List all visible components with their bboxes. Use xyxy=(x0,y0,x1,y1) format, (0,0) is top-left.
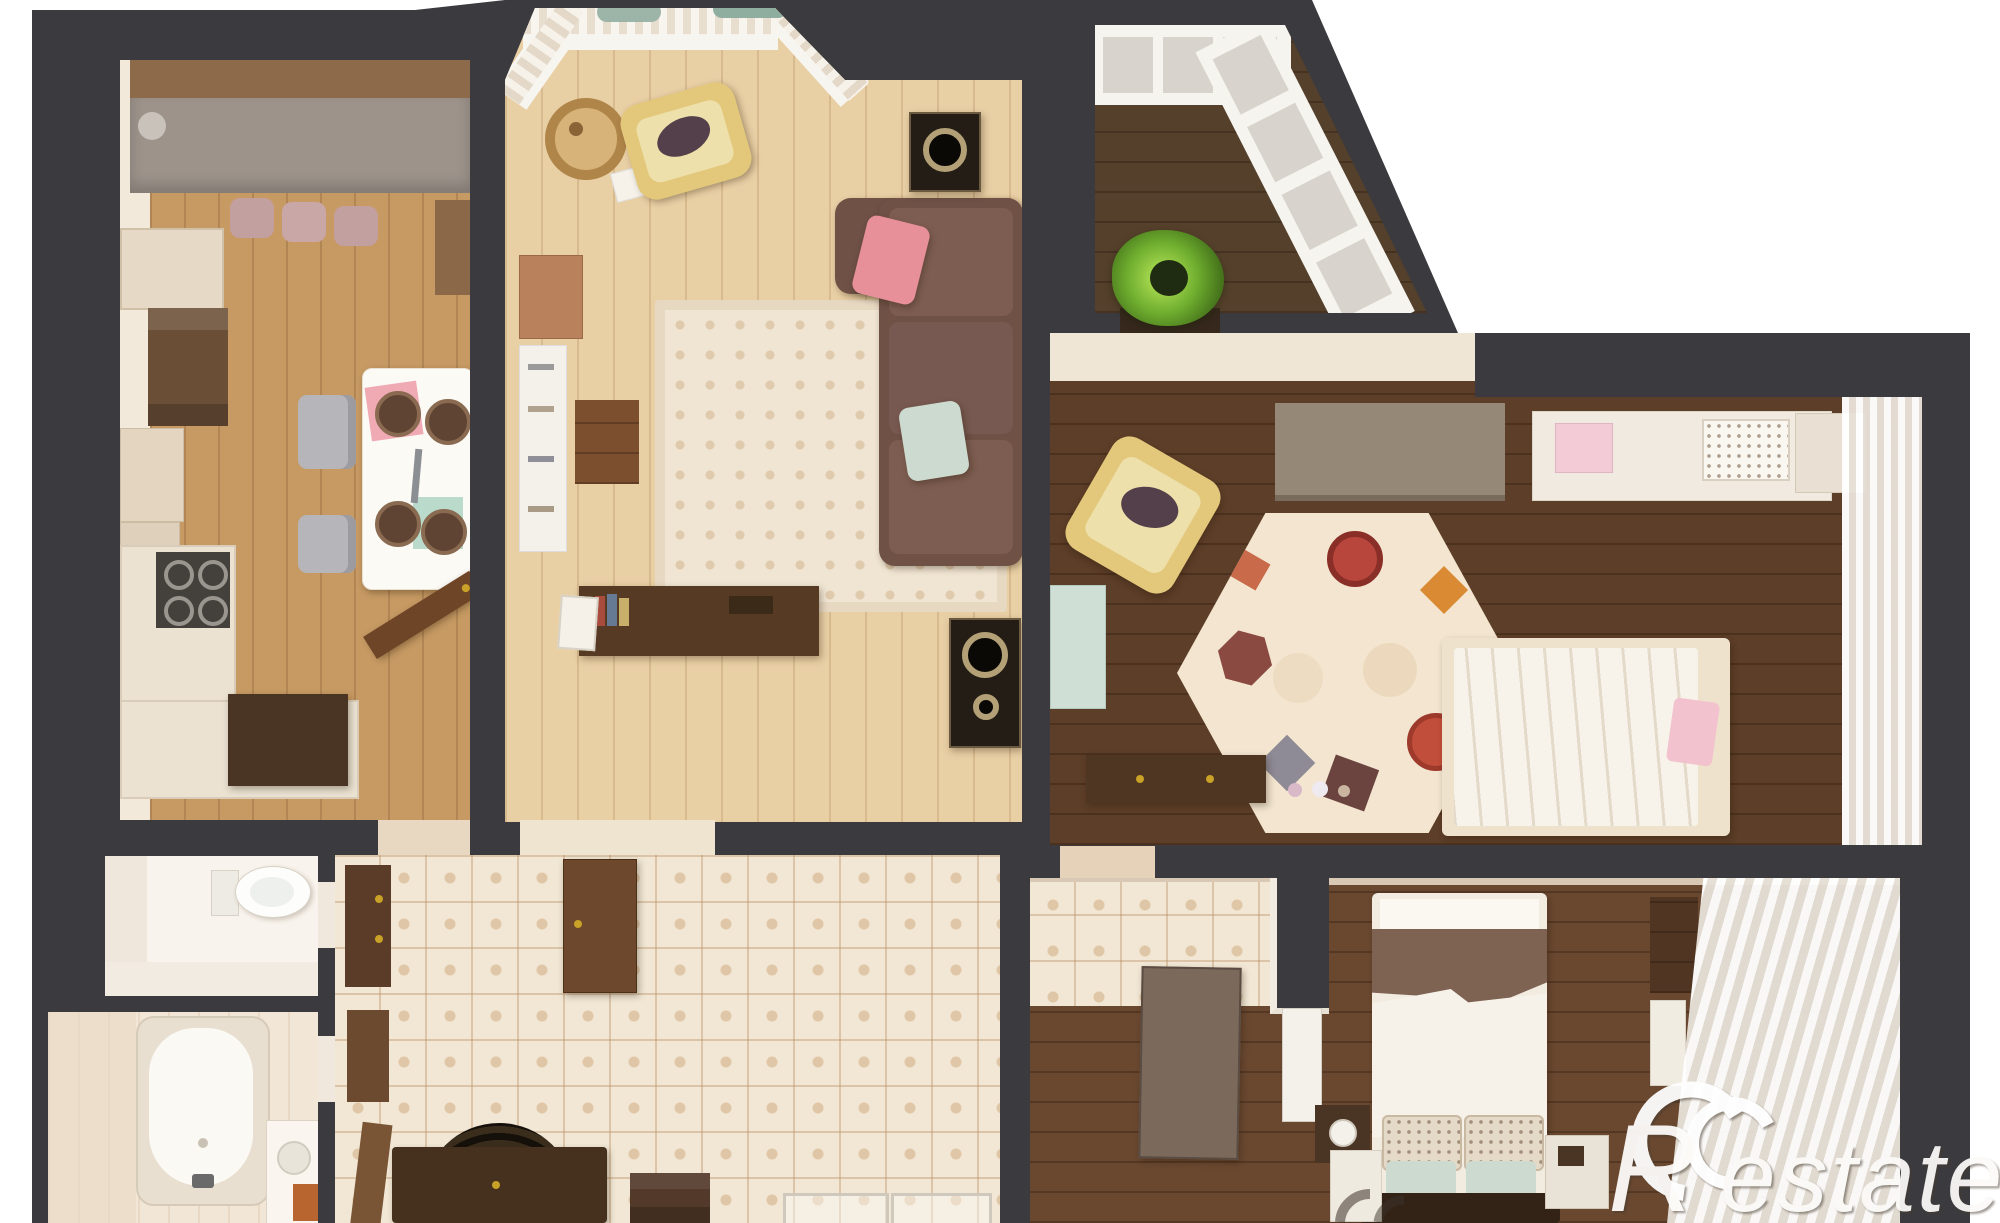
hall-bench xyxy=(392,1147,607,1223)
doorway-kitchen xyxy=(378,820,470,855)
doorway-living xyxy=(520,820,715,855)
desk-taupe xyxy=(1275,403,1505,501)
sofa-pillow-mint xyxy=(898,400,971,483)
bar-plate xyxy=(138,112,166,140)
watermark: R estate xyxy=(1580,1075,2000,1223)
console-table xyxy=(891,1193,992,1223)
laundry-basket xyxy=(293,1184,318,1221)
bathtub-basin xyxy=(149,1028,253,1186)
rug-motif xyxy=(1420,566,1468,614)
bar-stool-cushion xyxy=(334,206,378,246)
room-bathroom xyxy=(48,1012,318,1223)
floor-plan-stage: R estate xyxy=(0,0,2000,1223)
curtain-panel xyxy=(1842,381,1922,845)
tv-cabinet xyxy=(519,255,583,339)
bath-wall-shade xyxy=(48,1012,136,1223)
fridge xyxy=(120,228,224,310)
balcony-plant xyxy=(1108,230,1232,348)
dinner-plate xyxy=(421,509,467,555)
bed-single xyxy=(1442,638,1730,836)
bed-double xyxy=(1372,893,1547,1223)
speaker xyxy=(909,112,981,192)
kitchen-cabinet xyxy=(120,428,184,522)
cosmetics xyxy=(1288,779,1368,801)
bed-top-pillowband xyxy=(1380,899,1539,929)
wc-wall-shade xyxy=(105,962,318,996)
speaker xyxy=(949,618,1021,748)
bathtub xyxy=(136,1016,270,1206)
chest xyxy=(1650,897,1698,993)
watermark-logo-letter: R xyxy=(1608,1100,1698,1223)
wall-art xyxy=(557,595,599,652)
storage-crate xyxy=(1702,419,1790,481)
dining-chair xyxy=(298,395,356,469)
sideboard xyxy=(579,586,819,656)
wall-stub xyxy=(1270,878,1329,1014)
door-leaning xyxy=(1138,966,1241,1160)
table-utensils xyxy=(411,449,423,503)
bench-seat-mint xyxy=(1050,585,1106,709)
storage-box-white xyxy=(1650,1000,1686,1086)
kitchen-cabinet-tall xyxy=(148,308,228,426)
hall-wall-shelf xyxy=(345,865,391,987)
rug-motif xyxy=(1327,531,1383,587)
stove xyxy=(156,552,230,628)
window-sill xyxy=(130,60,470,98)
plant-core xyxy=(1150,260,1188,296)
room-hallway xyxy=(335,855,1000,1223)
side-table-wicker xyxy=(545,98,627,180)
bath-faucet xyxy=(192,1174,214,1188)
dinner-plate xyxy=(375,501,421,547)
bedroom1-top-wall xyxy=(1475,333,1922,397)
watermark-fragment xyxy=(1300,1178,1500,1223)
room-bedroom-1 xyxy=(1050,333,1922,845)
bar-stool-cushion xyxy=(282,202,326,242)
room-living xyxy=(505,0,1022,822)
bar-stool-cushion xyxy=(230,198,274,238)
hall-door-open xyxy=(563,859,637,993)
console-table xyxy=(783,1193,889,1223)
hall-wall-shelf xyxy=(347,1010,389,1102)
room-kitchen xyxy=(120,60,470,820)
dining-chair xyxy=(298,515,356,573)
doorway-wc xyxy=(318,882,335,948)
hall-leaning-board xyxy=(343,1122,392,1223)
hall-cabinet xyxy=(630,1173,710,1223)
storage-box-pink xyxy=(1555,423,1613,473)
bed-pillow-pink xyxy=(1666,697,1720,767)
dresser xyxy=(1086,755,1266,803)
window-bar-counter xyxy=(130,98,470,193)
room-wc xyxy=(105,856,318,996)
bed-mattress xyxy=(1454,648,1698,826)
rug-motif xyxy=(1273,653,1323,703)
bookshelf xyxy=(519,345,567,552)
media-cabinet xyxy=(575,400,639,484)
dinner-plate xyxy=(375,391,421,437)
toilet-bowl xyxy=(235,866,311,918)
dinner-plate xyxy=(425,399,470,445)
watermark-text: estate xyxy=(1720,1121,2000,1223)
rug-motif xyxy=(1363,643,1417,697)
corner-sofa xyxy=(835,198,1022,568)
wall-ledge xyxy=(435,200,470,295)
rug-motif xyxy=(1211,627,1278,690)
doorway-bedroom1 xyxy=(1060,846,1155,878)
kitchen-island xyxy=(228,694,348,786)
dining-table xyxy=(362,368,470,590)
doorway-bathroom xyxy=(318,1036,335,1102)
